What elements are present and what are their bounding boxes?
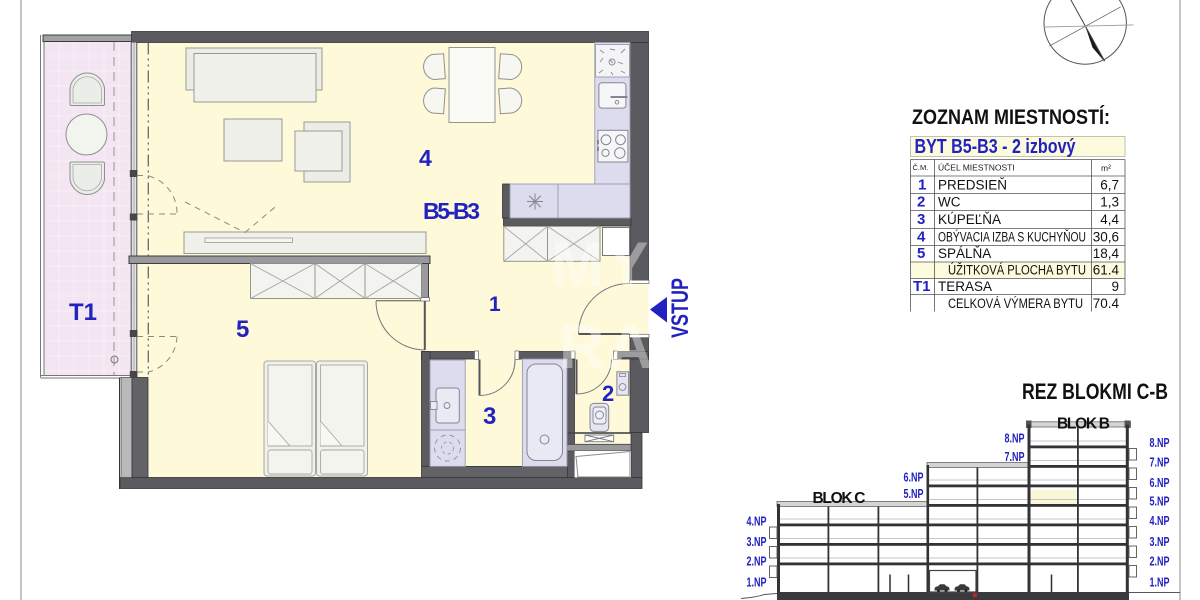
svg-text:1,3: 1,3 <box>1100 195 1119 210</box>
svg-text:30,6: 30,6 <box>1093 230 1119 245</box>
svg-text:61.4: 61.4 <box>1093 263 1120 278</box>
svg-text:T1: T1 <box>913 278 931 295</box>
svg-text:TERASA: TERASA <box>938 279 992 294</box>
svg-text:2: 2 <box>602 381 614 406</box>
svg-text:T1: T1 <box>69 299 97 326</box>
svg-text:6.NP: 6.NP <box>904 471 924 485</box>
svg-text:1: 1 <box>489 293 501 316</box>
svg-text:RA: RA <box>559 312 656 382</box>
svg-text:ÚŽITKOVÁ PLOCHA BYTU: ÚŽITKOVÁ PLOCHA BYTU <box>948 263 1086 278</box>
svg-text:CELKOVÁ VÝMERA BYTU: CELKOVÁ VÝMERA BYTU <box>948 296 1083 311</box>
svg-text:MY: MY <box>551 230 652 300</box>
svg-text:1: 1 <box>918 177 926 194</box>
svg-text:5.NP: 5.NP <box>904 487 924 501</box>
svg-text:4.NP: 4.NP <box>1150 514 1170 528</box>
svg-text:Č.M.: Č.M. <box>913 163 929 172</box>
svg-text:2: 2 <box>917 194 925 211</box>
svg-text:2.NP: 2.NP <box>1150 555 1170 569</box>
svg-text:3: 3 <box>483 403 496 430</box>
svg-text:SPÁLŇA: SPÁLŇA <box>938 246 991 261</box>
svg-text:3.NP: 3.NP <box>747 535 767 549</box>
svg-text:BLOK B: BLOK B <box>1057 416 1110 433</box>
svg-text:KÚPEĽŇA: KÚPEĽŇA <box>938 212 1001 227</box>
svg-text:BLOK C: BLOK C <box>813 490 866 507</box>
svg-text:7.NP: 7.NP <box>1150 456 1170 470</box>
svg-text:4,4: 4,4 <box>1100 212 1119 227</box>
svg-text:OBÝVACIA IZBA S KUCHYŇOU: OBÝVACIA IZBA S KUCHYŇOU <box>938 230 1086 245</box>
svg-text:ÚČEL MIESTNOSTI: ÚČEL MIESTNOSTI <box>938 163 1015 173</box>
svg-text:4.NP: 4.NP <box>747 515 767 529</box>
svg-text:ZOZNAM MIESTNOSTÍ:: ZOZNAM MIESTNOSTÍ: <box>912 106 1110 129</box>
svg-text:7.NP: 7.NP <box>1005 450 1025 464</box>
svg-text:5: 5 <box>236 316 249 343</box>
svg-text:8.NP: 8.NP <box>1150 436 1170 450</box>
svg-text:3.NP: 3.NP <box>1150 535 1170 549</box>
svg-text:6,7: 6,7 <box>1100 178 1119 193</box>
svg-text:8.NP: 8.NP <box>1005 432 1025 446</box>
svg-text:BYT B5-B3 - 2 izbový: BYT B5-B3 - 2 izbový <box>915 136 1077 158</box>
svg-text:4: 4 <box>917 229 926 246</box>
svg-text:1.NP: 1.NP <box>1150 576 1170 590</box>
svg-text:6.NP: 6.NP <box>1150 476 1170 490</box>
svg-text:18,4: 18,4 <box>1093 246 1120 261</box>
svg-text:4: 4 <box>419 145 432 171</box>
svg-text:VSTUP: VSTUP <box>667 278 694 338</box>
svg-text:3: 3 <box>917 211 925 228</box>
svg-text:1.NP: 1.NP <box>747 576 767 590</box>
svg-text:2.NP: 2.NP <box>747 555 767 569</box>
svg-text:5: 5 <box>917 245 925 262</box>
svg-text:m²: m² <box>1101 163 1111 173</box>
svg-text:WC: WC <box>938 195 961 210</box>
svg-text:B5-B3: B5-B3 <box>423 198 480 224</box>
svg-text:9: 9 <box>1111 279 1119 294</box>
svg-text:REZ BLOKMI C-B: REZ BLOKMI C-B <box>1022 379 1168 404</box>
svg-text:5.NP: 5.NP <box>1150 495 1170 509</box>
svg-text:70.4: 70.4 <box>1093 296 1120 311</box>
svg-text:PREDSIEŇ: PREDSIEŇ <box>938 178 1007 193</box>
